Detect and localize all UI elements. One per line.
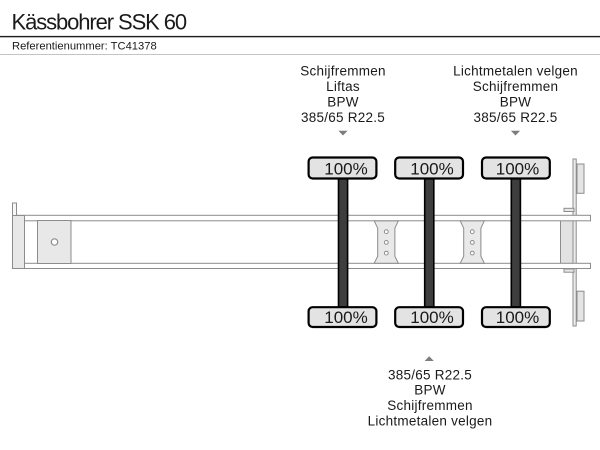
svg-text:Schijfremmen: Schijfremmen bbox=[387, 398, 473, 413]
svg-text:Schijfremmen: Schijfremmen bbox=[300, 63, 386, 78]
svg-text:Liftas: Liftas bbox=[326, 79, 360, 94]
svg-text:Schijfremmen: Schijfremmen bbox=[473, 79, 559, 94]
svg-text:100%: 100% bbox=[496, 160, 539, 179]
svg-text:100%: 100% bbox=[324, 160, 367, 179]
svg-text:385/65 R22.5: 385/65 R22.5 bbox=[388, 367, 472, 382]
svg-text:BPW: BPW bbox=[327, 94, 359, 109]
svg-text:Lichtmetalen velgen: Lichtmetalen velgen bbox=[453, 63, 578, 78]
svg-text:100%: 100% bbox=[496, 308, 539, 327]
svg-text:BPW: BPW bbox=[500, 94, 532, 109]
svg-text:100%: 100% bbox=[410, 160, 453, 179]
svg-text:Kässbohrer SSK 60: Kässbohrer SSK 60 bbox=[12, 10, 187, 35]
svg-text:Lichtmetalen velgen: Lichtmetalen velgen bbox=[368, 413, 493, 428]
svg-text:100%: 100% bbox=[410, 308, 453, 327]
svg-text:385/65 R22.5: 385/65 R22.5 bbox=[473, 110, 557, 125]
svg-text:BPW: BPW bbox=[414, 383, 446, 398]
svg-text:385/65 R22.5: 385/65 R22.5 bbox=[301, 110, 385, 125]
svg-text:Referentienummer: TC41378: Referentienummer: TC41378 bbox=[12, 41, 157, 53]
svg-text:100%: 100% bbox=[324, 308, 367, 327]
